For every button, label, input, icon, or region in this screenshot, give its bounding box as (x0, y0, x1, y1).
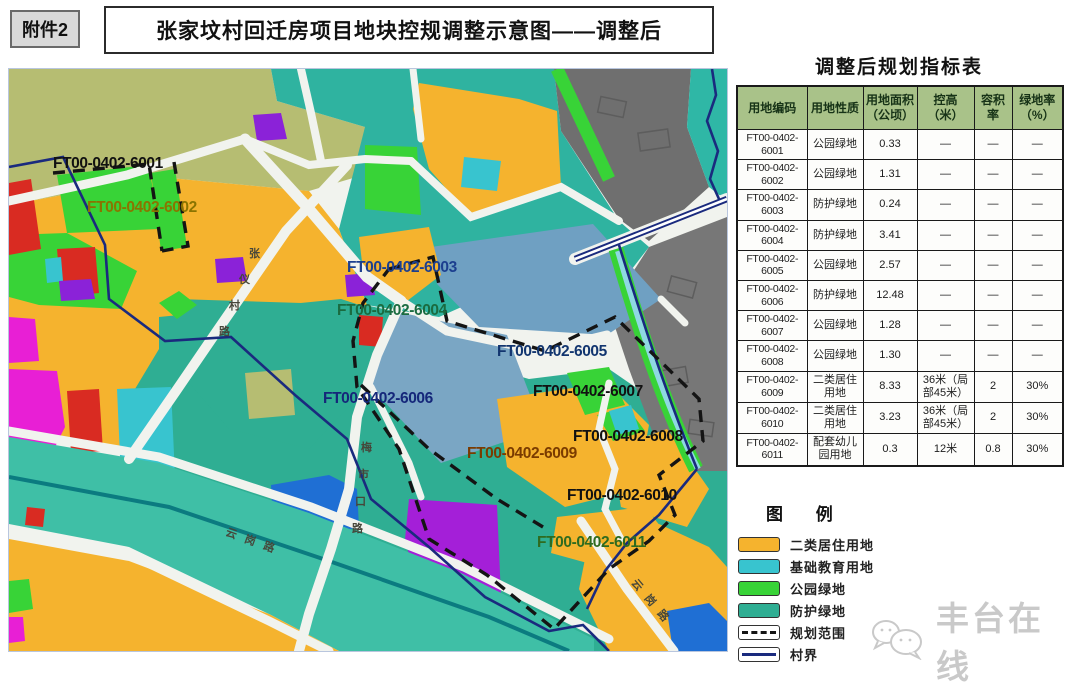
plot-label: FT00-0402-6001 (53, 155, 164, 172)
planning-map: 张仪村路梅市口路云岗路云岗路 FT00-0402-6001FT00-0402-6… (8, 68, 728, 652)
cell-plot-code: FT00-0402-6004 (737, 220, 807, 250)
plot-label: FT00-0402-6011 (537, 534, 647, 551)
column-header: 绿地率（%） (1012, 86, 1063, 130)
legend-label: 公园绿地 (790, 579, 846, 598)
table-row: FT00-0402-6002公园绿地1.31——— (737, 160, 1063, 190)
column-header: 容积率 (974, 86, 1012, 130)
column-header: 用地性质 (807, 86, 863, 130)
table-row: FT00-0402-6010二类居住用地3.2336米（局部45米）230% (737, 402, 1063, 433)
cell-area: 1.31 (863, 160, 917, 190)
cell-far: — (974, 341, 1012, 371)
wechat-bubbles-icon (868, 616, 928, 665)
cell-height-limit: — (917, 190, 974, 220)
park-green-swatch (738, 581, 780, 596)
plot-label: FT00-0402-6006 (323, 390, 434, 407)
plot-label: FT00-0402-6010 (567, 487, 677, 504)
cell-area: 3.23 (863, 402, 917, 433)
table-row: FT00-0402-6009二类居住用地8.3336米（局部45米）230% (737, 371, 1063, 402)
table-row: FT00-0402-6003防护绿地0.24——— (737, 190, 1063, 220)
residential-swatch (738, 537, 780, 552)
table-row: FT00-0402-6001公园绿地0.33——— (737, 130, 1063, 160)
cell-land-use: 防护绿地 (807, 190, 863, 220)
plot-label: FT00-0402-6007 (533, 383, 643, 400)
cell-height-limit: 36米（局部45米） (917, 371, 974, 402)
cell-far: — (974, 190, 1012, 220)
cell-area: 0.33 (863, 130, 917, 160)
watermark-text: 丰台在线 (936, 592, 1070, 688)
legend-item: 二类居住用地 (738, 533, 998, 555)
cell-height-limit: — (917, 160, 974, 190)
legend-label: 规划范围 (790, 623, 846, 642)
cell-green-ratio: — (1012, 130, 1063, 160)
column-header: 用地面积（公顷） (863, 86, 917, 130)
cell-height-limit: 12米 (917, 434, 974, 466)
cell-area: 12.48 (863, 280, 917, 310)
cell-far: — (974, 160, 1012, 190)
cell-green-ratio: — (1012, 341, 1063, 371)
legend-item: 基础教育用地 (738, 555, 998, 577)
planning-map-svg: 张仪村路梅市口路云岗路云岗路 FT00-0402-6001FT00-0402-6… (9, 69, 727, 651)
page-title: 张家坟村回迁房项目地块控规调整示意图——调整后 (104, 6, 714, 54)
cell-height-limit: — (917, 311, 974, 341)
cell-land-use: 配套幼儿园用地 (807, 434, 863, 466)
cell-plot-code: FT00-0402-6009 (737, 371, 807, 402)
legend-title: 图 例 (766, 500, 998, 525)
legend-label: 基础教育用地 (790, 557, 874, 576)
cell-land-use: 防护绿地 (807, 220, 863, 250)
cell-height-limit: — (917, 280, 974, 310)
cell-green-ratio: — (1012, 311, 1063, 341)
cell-green-ratio: — (1012, 250, 1063, 280)
cell-green-ratio: 30% (1012, 402, 1063, 433)
cell-far: — (974, 311, 1012, 341)
table-row: FT00-0402-6007公园绿地1.28——— (737, 311, 1063, 341)
attachment-label: 附件2 (10, 10, 80, 48)
cell-height-limit: — (917, 220, 974, 250)
cell-area: 1.28 (863, 311, 917, 341)
cell-green-ratio: 30% (1012, 434, 1063, 466)
plot-label: FT00-0402-6005 (497, 343, 608, 360)
cell-far: 0.8 (974, 434, 1012, 466)
education-swatch (738, 559, 780, 574)
watermark: 丰台在线 (868, 592, 1070, 688)
buffer-green-swatch (738, 603, 780, 618)
cell-plot-code: FT00-0402-6011 (737, 434, 807, 466)
table-row: FT00-0402-6011配套幼儿园用地0.312米0.830% (737, 434, 1063, 466)
column-header: 控高（米） (917, 86, 974, 130)
plot-label: FT00-0402-6009 (467, 445, 578, 462)
table-row: FT00-0402-6006防护绿地12.48——— (737, 280, 1063, 310)
planning-boundary-line (738, 625, 780, 640)
cell-far: — (974, 220, 1012, 250)
cell-plot-code: FT00-0402-6005 (737, 250, 807, 280)
cell-area: 1.30 (863, 341, 917, 371)
cell-plot-code: FT00-0402-6002 (737, 160, 807, 190)
cell-plot-code: FT00-0402-6008 (737, 341, 807, 371)
cell-land-use: 二类居住用地 (807, 371, 863, 402)
legend-label: 二类居住用地 (790, 535, 874, 554)
cell-plot-code: FT00-0402-6006 (737, 280, 807, 310)
cell-land-use: 公园绿地 (807, 250, 863, 280)
plot-label: FT00-0402-6004 (337, 302, 448, 319)
cell-far: — (974, 280, 1012, 310)
indicator-table: 用地编码用地性质用地面积（公顷）控高（米）容积率绿地率（%） FT00-0402… (736, 85, 1064, 467)
cell-area: 0.24 (863, 190, 917, 220)
cell-area: 2.57 (863, 250, 917, 280)
cell-green-ratio: — (1012, 280, 1063, 310)
cell-far: 2 (974, 402, 1012, 433)
cell-height-limit: — (917, 341, 974, 371)
legend-label: 防护绿地 (790, 601, 846, 620)
cell-area: 0.3 (863, 434, 917, 466)
cell-area: 8.33 (863, 371, 917, 402)
village-border-line (738, 647, 780, 662)
plot-label: FT00-0402-6003 (347, 259, 458, 276)
cell-green-ratio: — (1012, 220, 1063, 250)
cell-height-limit: 36米（局部45米） (917, 402, 974, 433)
legend-label: 村界 (790, 645, 818, 664)
cell-far: — (974, 250, 1012, 280)
cell-land-use: 二类居住用地 (807, 402, 863, 433)
plot-label: FT00-0402-6008 (573, 428, 684, 445)
indicator-panel: 调整后规划指标表 用地编码用地性质用地面积（公顷）控高（米）容积率绿地率（%） … (730, 52, 1066, 467)
cell-land-use: 公园绿地 (807, 160, 863, 190)
column-header: 用地编码 (737, 86, 807, 130)
cell-green-ratio: 30% (1012, 371, 1063, 402)
cell-plot-code: FT00-0402-6003 (737, 190, 807, 220)
cell-height-limit: — (917, 130, 974, 160)
table-row: FT00-0402-6004防护绿地3.41——— (737, 220, 1063, 250)
cell-land-use: 公园绿地 (807, 311, 863, 341)
cell-land-use: 公园绿地 (807, 130, 863, 160)
cell-height-limit: — (917, 250, 974, 280)
cell-land-use: 公园绿地 (807, 341, 863, 371)
cell-plot-code: FT00-0402-6007 (737, 311, 807, 341)
table-row: FT00-0402-6005公园绿地2.57——— (737, 250, 1063, 280)
cell-green-ratio: — (1012, 190, 1063, 220)
table-header-row: 用地编码用地性质用地面积（公顷）控高（米）容积率绿地率（%） (737, 86, 1063, 130)
cell-land-use: 防护绿地 (807, 280, 863, 310)
cell-far: 2 (974, 371, 1012, 402)
cell-plot-code: FT00-0402-6010 (737, 402, 807, 433)
plot-label: FT00-0402-6002 (87, 199, 197, 216)
cell-far: — (974, 130, 1012, 160)
table-title: 调整后规划指标表 (736, 52, 1062, 79)
cell-plot-code: FT00-0402-6001 (737, 130, 807, 160)
cell-green-ratio: — (1012, 160, 1063, 190)
table-row: FT00-0402-6008公园绿地1.30——— (737, 341, 1063, 371)
cell-area: 3.41 (863, 220, 917, 250)
